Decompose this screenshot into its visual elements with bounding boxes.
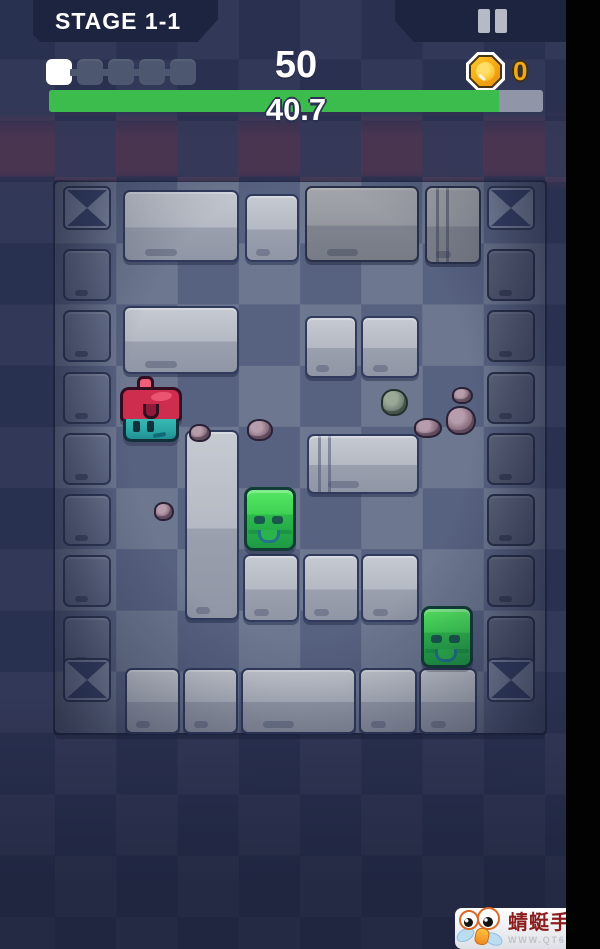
stone-slab [245,194,299,262]
pause-icon [478,9,490,33]
border-tile [487,310,535,362]
stone-slab [305,186,419,262]
rock [381,389,408,416]
eye-icon [459,910,479,930]
stage-panel: STAGE 1-1 [33,0,218,42]
slime-mouth [258,530,280,543]
stone-slab [303,554,359,622]
slime-enemy [244,487,296,551]
dragonfly-logo-icon [458,907,504,947]
corner-x-tile [487,186,535,230]
stone-slab [183,668,238,734]
slime-eye [254,516,265,524]
corner-x-mark [491,662,531,698]
player-cap-notch [143,404,159,419]
game-screen: STAGE 1-1 50 0 40.7 [0,0,600,949]
pupil [464,918,473,927]
game-field[interactable] [55,182,545,733]
slime-enemy [421,606,473,668]
border-tile [63,555,111,607]
stone-slab [243,554,299,622]
border-tile [63,310,111,362]
stone-slab [359,668,417,734]
border-tile [487,249,535,301]
coin-count: 0 [513,56,527,87]
watermark-site-name: 蜻蜓手游网 [508,913,566,933]
coin-icon [466,52,505,91]
corner-x-tile [63,658,111,702]
stone-slab [419,668,477,734]
slime-eye [449,635,460,643]
stone-slab [123,190,239,262]
slime-mouth [435,649,457,662]
border-tile [487,372,535,424]
stone-slab [125,668,180,734]
rock [154,502,174,521]
border-tile [487,555,535,607]
letterbox-strip [566,0,600,949]
watermark-badge: 蜻蜓手游网 WWW.QT6.COM [455,908,566,949]
corner-x-mark [67,190,107,226]
player-character [120,376,182,442]
stone-slab [185,430,239,620]
corner-x-mark [67,662,107,698]
stone-slab [305,316,357,378]
eye-icon [477,907,500,930]
watermark-text: 蜻蜓手游网 WWW.QT6.COM [508,913,566,945]
border-tile [63,249,111,301]
border-tile [63,433,111,485]
corner-x-mark [491,190,531,226]
stone-slab [307,434,419,494]
stone-slab [425,186,481,264]
corner-x-tile [63,186,111,230]
coin-icon-center [476,62,495,81]
watermark-site-url: WWW.QT6.COM [508,936,566,945]
rock [452,387,473,404]
pause-panel [395,0,566,42]
player-eye [147,421,154,432]
pause-icon [495,9,507,33]
border-tile [63,372,111,424]
rock [189,424,211,442]
slime-eye [431,635,442,643]
border-tile [63,494,111,546]
rock [446,406,476,435]
stone-slab [123,306,239,374]
corner-x-tile [487,658,535,702]
slime-eye [272,516,283,524]
stone-slab [361,554,419,622]
rock [247,419,273,441]
pause-button[interactable] [478,9,510,34]
pupil [483,917,493,927]
game-viewport: STAGE 1-1 50 0 40.7 [0,0,566,949]
border-tile [487,494,535,546]
stage-label: STAGE 1-1 [55,8,181,35]
coin-counter: 0 [466,52,527,91]
progress-label: 40.7 [49,93,543,127]
player-eye [133,421,140,432]
stone-slab [361,316,419,378]
stone-slab [241,668,356,734]
border-tile [487,433,535,485]
rock [414,418,442,438]
